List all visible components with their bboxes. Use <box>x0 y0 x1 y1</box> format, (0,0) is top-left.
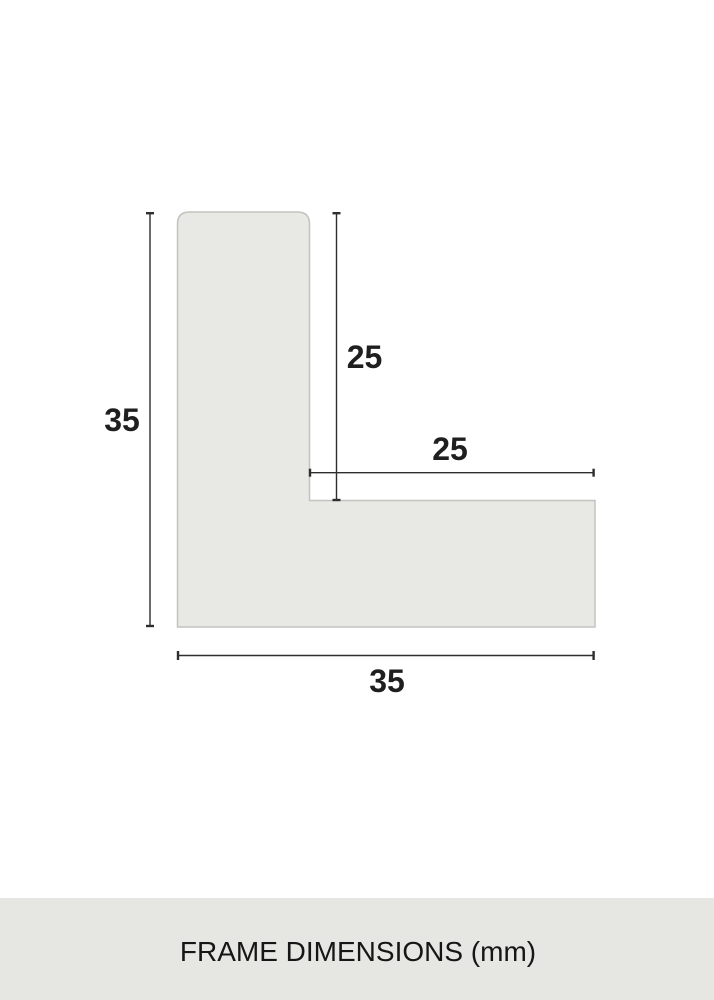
svg-text:FRAME DIMENSIONS (mm): FRAME DIMENSIONS (mm) <box>180 936 536 967</box>
svg-text:35: 35 <box>104 402 140 438</box>
svg-text:25: 25 <box>347 339 383 375</box>
svg-text:25: 25 <box>432 431 468 467</box>
svg-text:35: 35 <box>369 663 405 699</box>
